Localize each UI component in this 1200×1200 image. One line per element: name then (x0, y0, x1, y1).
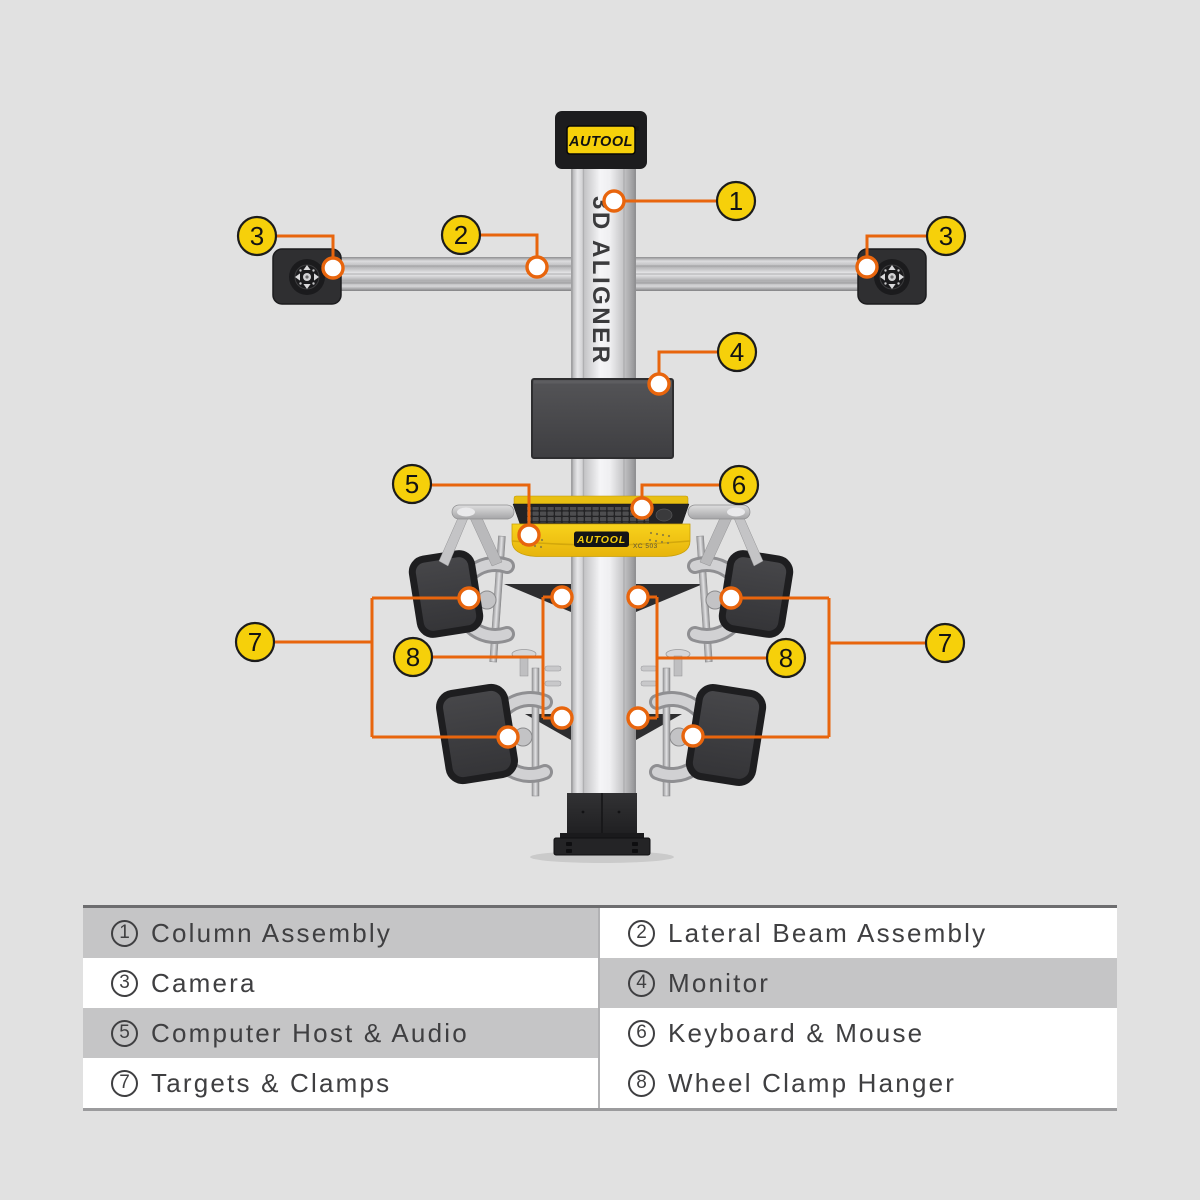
legend-label-2: Lateral Beam Assembly (668, 918, 987, 949)
legend-row-keyboard-mouse: 6 Keyboard & Mouse (600, 1008, 1117, 1058)
callout-8-left: 8 (394, 638, 432, 676)
machine-diagram: AUTOOL ® 3D ALIGNER (0, 0, 1200, 900)
legend-row-column-assembly: 1 Column Assembly (83, 908, 600, 958)
callout-3-left-number: 3 (250, 221, 264, 251)
legend-label-8: Wheel Clamp Hanger (668, 1068, 956, 1099)
column-top-cap: AUTOOL ® (555, 111, 647, 169)
legend-column-divider (598, 908, 600, 1108)
computer-host-tray: AUTOOL XC 503 (512, 496, 690, 557)
callout-8-left-number: 8 (406, 642, 420, 672)
legend-number-8: 8 (628, 1070, 655, 1097)
legend-label-1: Column Assembly (151, 918, 392, 949)
callout-1: 1 (717, 182, 755, 220)
callout-1-number: 1 (729, 186, 743, 216)
tray-model-text: XC 503 (633, 543, 658, 550)
column-base (530, 793, 674, 863)
legend-label-4: Monitor (668, 968, 770, 999)
callout-5-number: 5 (405, 469, 419, 499)
brand-logo-text: AUTOOL (568, 134, 633, 150)
legend-label-3: Camera (151, 968, 257, 999)
callout-3-left: 3 (238, 217, 276, 255)
legend-row-camera: 3 Camera (83, 958, 600, 1008)
callout-8-right: 8 (767, 639, 805, 677)
tray-back-rim (514, 496, 688, 505)
callout-2: 2 (442, 216, 480, 254)
legend-number-1: 1 (111, 920, 138, 947)
legend-number-4: 4 (628, 970, 655, 997)
legend-number-2: 2 (628, 920, 655, 947)
callout-4-number: 4 (730, 337, 744, 367)
callout-7-right-number: 7 (938, 628, 952, 658)
callout-6-number: 6 (732, 470, 746, 500)
legend-row-wheel-clamp-hanger: 8 Wheel Clamp Hanger (600, 1058, 1117, 1108)
legend-label-5: Computer Host & Audio (151, 1018, 469, 1049)
callout-3-right: 3 (927, 217, 965, 255)
legend-row-monitor: 4 Monitor (600, 958, 1117, 1008)
legend-label-7: Targets & Clamps (151, 1068, 391, 1099)
callout-7-right: 7 (926, 624, 964, 662)
parts-legend-table: 1 Column Assembly 2 Lateral Beam Assembl… (83, 905, 1117, 1111)
mouse (656, 509, 672, 521)
brand-registered-mark: ® (635, 126, 640, 133)
callout-3-right-number: 3 (939, 221, 953, 251)
legend-label-6: Keyboard & Mouse (668, 1018, 924, 1049)
callout-7-left: 7 (236, 623, 274, 661)
legend-row-targets-clamps: 7 Targets & Clamps (83, 1058, 600, 1108)
legend-number-3: 3 (111, 970, 138, 997)
tray-brand-text: AUTOOL (576, 534, 626, 546)
legend-number-6: 6 (628, 1020, 655, 1047)
legend-row-computer-host-audio: 5 Computer Host & Audio (83, 1008, 600, 1058)
aligner-infographic: AUTOOL ® 3D ALIGNER (0, 0, 1200, 1200)
callout-7-left-number: 7 (248, 627, 262, 657)
legend-row-lateral-beam-assembly: 2 Lateral Beam Assembly (600, 908, 1117, 958)
callout-2-number: 2 (454, 220, 468, 250)
legend-number-5: 5 (111, 1020, 138, 1047)
callout-8-right-number: 8 (779, 643, 793, 673)
callout-5: 5 (393, 465, 431, 503)
column-label: 3D ALIGNER (587, 196, 614, 365)
callout-4: 4 (718, 333, 756, 371)
legend-number-7: 7 (111, 1070, 138, 1097)
callout-6: 6 (720, 466, 758, 504)
